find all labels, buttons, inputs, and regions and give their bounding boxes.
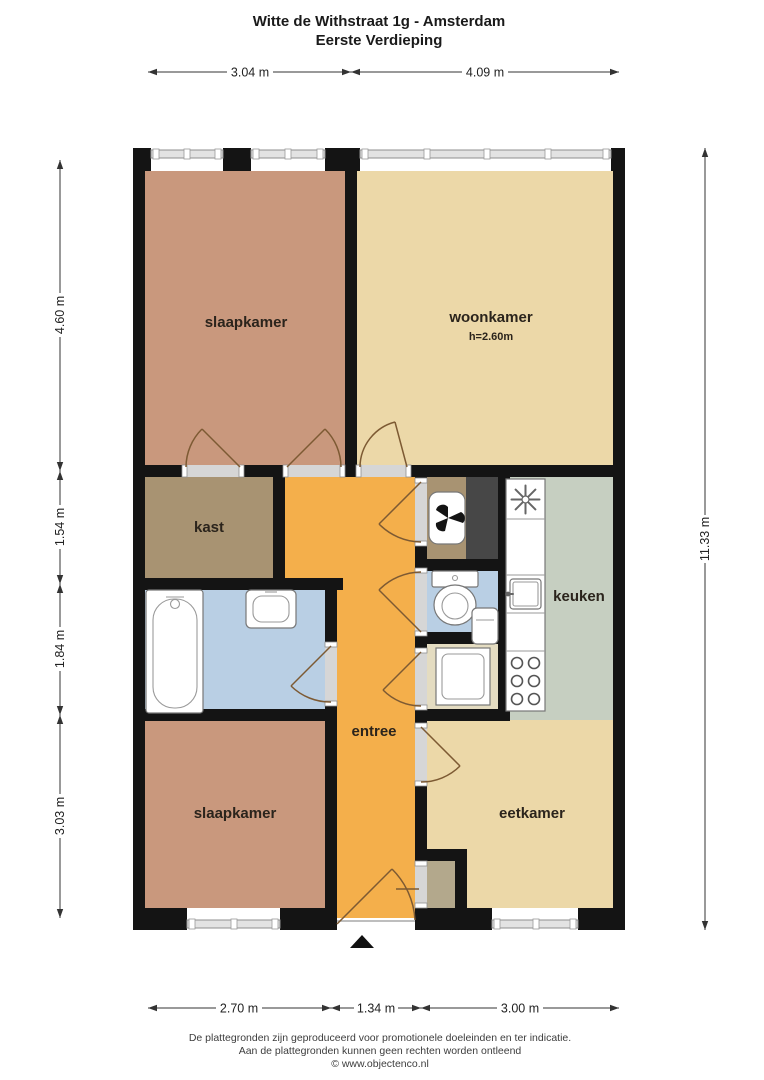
wall-pier [280,908,337,930]
wall-exterior-left [133,148,145,930]
wall-interior [415,709,510,721]
dimension-right-1: 11.33 m [698,148,712,930]
dimension-label: 3.03 m [53,797,67,835]
wall-interior [455,849,467,908]
dimension-top-2: 4.09 m [351,66,619,80]
entrance-arrow-icon [350,935,374,948]
wall-interior [273,471,285,590]
label-woonkamer: woonkamer [448,309,533,326]
title-block: Witte de Withstraat 1g - Amsterdam Eerst… [253,13,506,49]
floorplan-page: Witte de Withstraat 1g - Amsterdam Eerst… [0,0,764,1080]
dimension-label: 1.34 m [357,1002,395,1016]
wall-pier [415,908,492,930]
disclaimer-line-1: De plattegronden zijn geproduceerd voor … [189,1032,571,1044]
mv-unit [429,492,465,544]
copyright: © www.objectenco.nl [331,1058,429,1070]
dimension-label: 2.70 m [220,1002,258,1016]
wall-pier [611,148,625,171]
disclaimer-line-2: Aan de plattegronden kunnen geen rechten… [239,1045,522,1057]
page-title: Witte de Withstraat 1g - Amsterdam [253,13,506,30]
dimension-left-2: 1.54 m [53,471,67,584]
label-keuken: keuken [553,588,605,605]
page-subtitle: Eerste Verdieping [316,32,443,49]
wall-pier [325,148,360,171]
dimension-label: 3.00 m [501,1002,539,1016]
kitchen-sink [506,579,541,609]
washing-machine [436,648,490,705]
corner-sink [472,608,498,644]
extractor-fan-icon [512,486,540,514]
dimension-bottom-1: 2.70 m [148,1002,331,1016]
label-slaapkamer-bottom: slaapkamer [194,805,277,822]
dimension-label: 1.84 m [53,630,67,668]
footer: De plattegronden zijn geproduceerd voor … [189,1032,571,1070]
wall-pier [133,908,187,930]
label-slaapkamer-top: slaapkamer [205,314,288,331]
wall-interior [415,559,510,571]
wall-pier [223,148,251,171]
wall-pier [133,148,151,171]
label-entree: entree [351,723,396,740]
wall-pier [578,908,625,930]
dimension-bottom-3: 3.00 m [421,1002,619,1016]
dimension-top-1: 3.04 m [148,66,351,80]
dimension-bottom-2: 1.34 m [331,1002,421,1016]
dimension-label: 4.09 m [466,66,504,80]
dimension-left-1: 4.60 m [53,160,67,471]
label-kast: kast [194,519,224,536]
kitchen-counter [506,479,545,711]
dimension-label: 11.33 m [698,517,712,561]
bathroom-sink [246,590,296,628]
wall-exterior-right [613,148,625,930]
dimension-label: 1.54 m [53,508,67,546]
wall-interior [345,171,357,471]
dimension-label: 3.04 m [231,66,269,80]
dimension-left-3: 1.84 m [53,584,67,715]
label-eetkamer: eetkamer [499,805,565,822]
dimension-label: 4.60 m [53,296,67,334]
toilet [432,571,478,625]
room-slaapkamer-top [139,154,351,471]
label-ceiling-height: h=2.60m [469,331,514,343]
front-door-threshold [337,918,415,930]
wall-interior [325,584,337,908]
floorplan-drawing: Witte de Withstraat 1g - Amsterdam Eerst… [0,0,764,1080]
dimension-left-4: 3.03 m [53,715,67,918]
wall-interior [133,578,343,590]
bathtub [146,590,203,713]
